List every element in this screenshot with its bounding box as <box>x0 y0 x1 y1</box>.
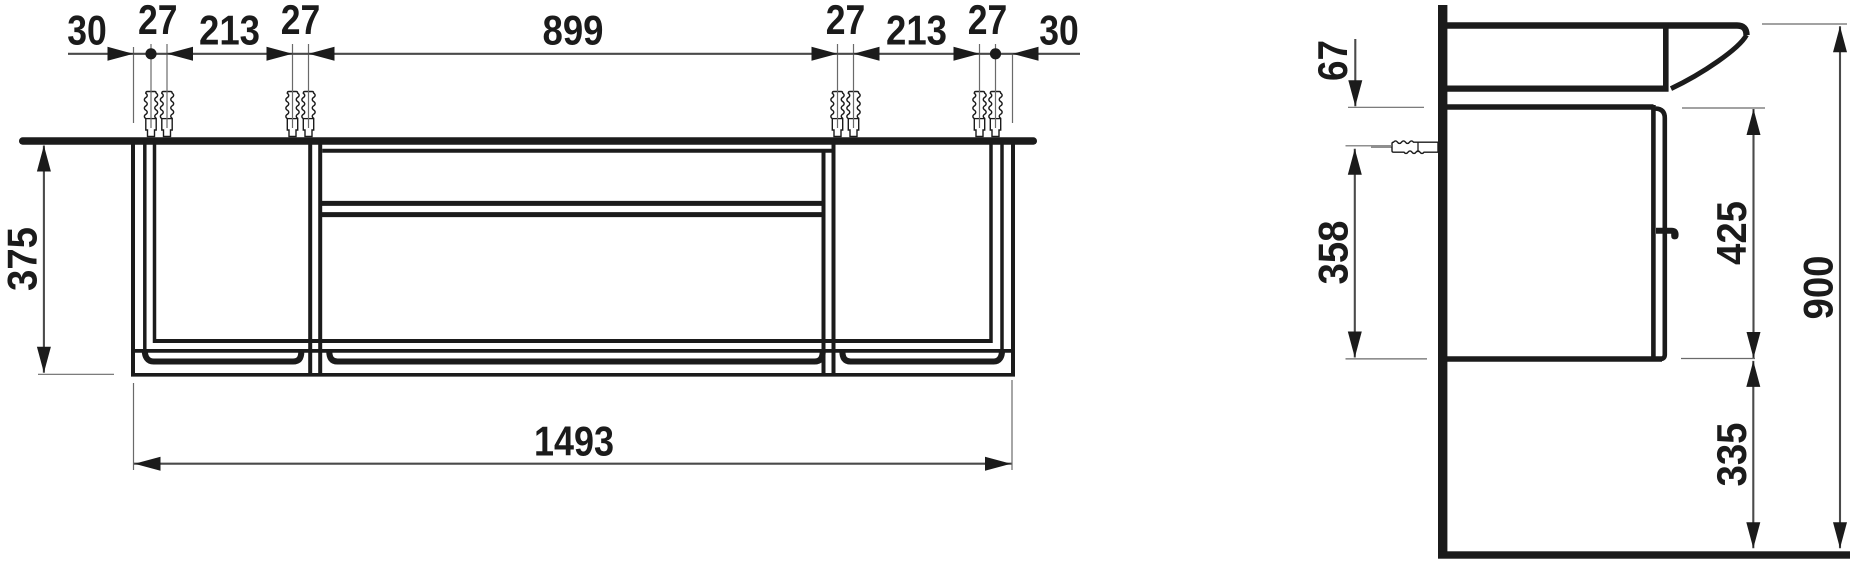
svg-text:27: 27 <box>138 0 178 43</box>
svg-text:899: 899 <box>543 7 604 54</box>
svg-text:358: 358 <box>1310 221 1357 285</box>
svg-text:375: 375 <box>0 227 45 291</box>
svg-text:425: 425 <box>1708 201 1755 265</box>
svg-text:213: 213 <box>886 7 947 54</box>
svg-text:900: 900 <box>1795 256 1842 320</box>
svg-text:30: 30 <box>67 7 107 54</box>
svg-text:27: 27 <box>826 0 866 43</box>
svg-text:1493: 1493 <box>534 418 614 465</box>
svg-text:27: 27 <box>281 0 321 43</box>
svg-text:213: 213 <box>199 7 260 54</box>
svg-text:67: 67 <box>1309 40 1356 81</box>
svg-text:30: 30 <box>1039 7 1079 54</box>
svg-text:335: 335 <box>1708 423 1755 487</box>
svg-text:27: 27 <box>968 0 1008 43</box>
